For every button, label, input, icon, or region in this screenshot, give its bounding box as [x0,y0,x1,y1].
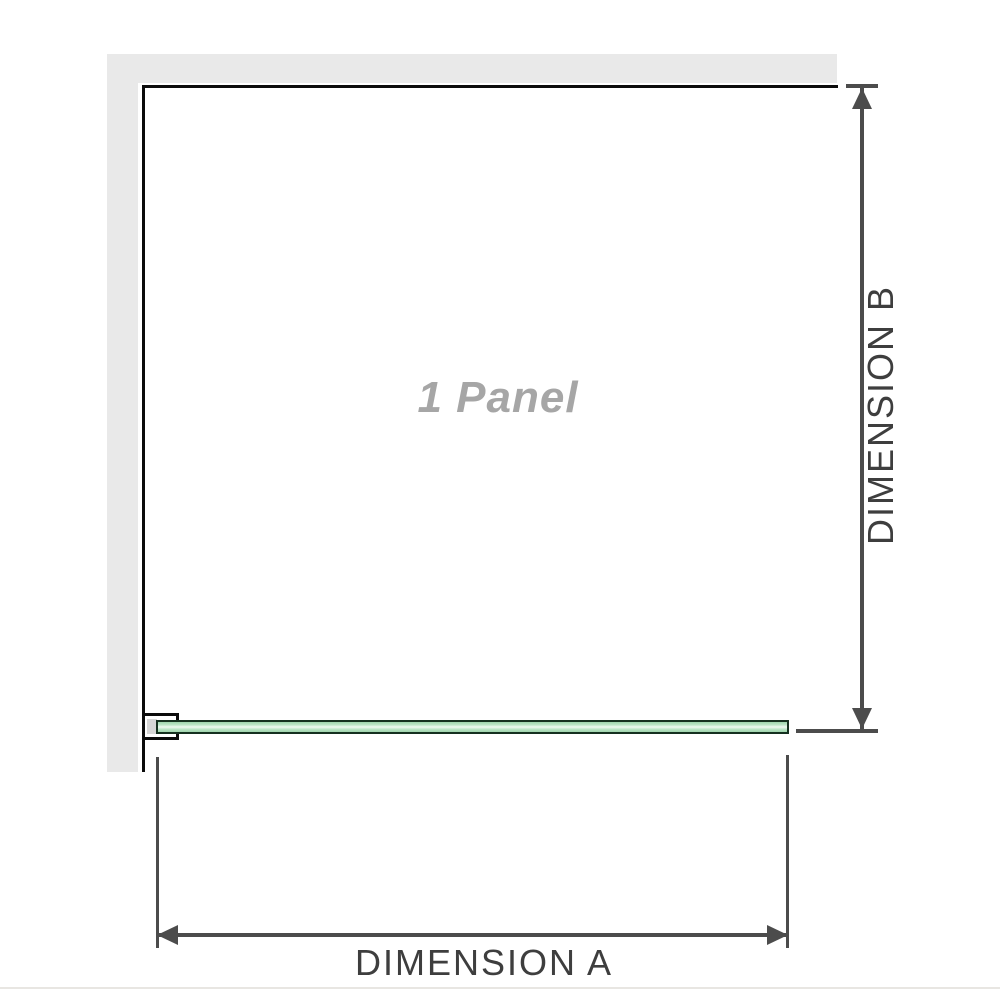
dimension-a-label: DIMENSION A [355,942,613,984]
wall-left [107,54,138,772]
panel-label-box: 1 Panel [143,86,837,722]
arrow-up-icon [852,88,872,109]
dimension-a-line [157,933,788,937]
panel-count-label: 1 Panel [417,373,578,423]
dimension-a-extension-left [156,757,159,948]
dimension-a-extension-right [786,755,789,948]
arrow-down-icon [852,708,872,729]
arrow-left-icon [157,925,178,945]
glass-panel [156,720,789,734]
shower-panel-diagram: 1 Panel DIMENSION B DIMENSION A [0,0,1000,1000]
bottom-divider [0,987,1000,989]
arrow-right-icon [767,925,788,945]
dimension-b-tick-bottom [796,729,878,733]
dimension-b-label: DIMENSION B [860,285,902,545]
wall-top [107,54,837,83]
